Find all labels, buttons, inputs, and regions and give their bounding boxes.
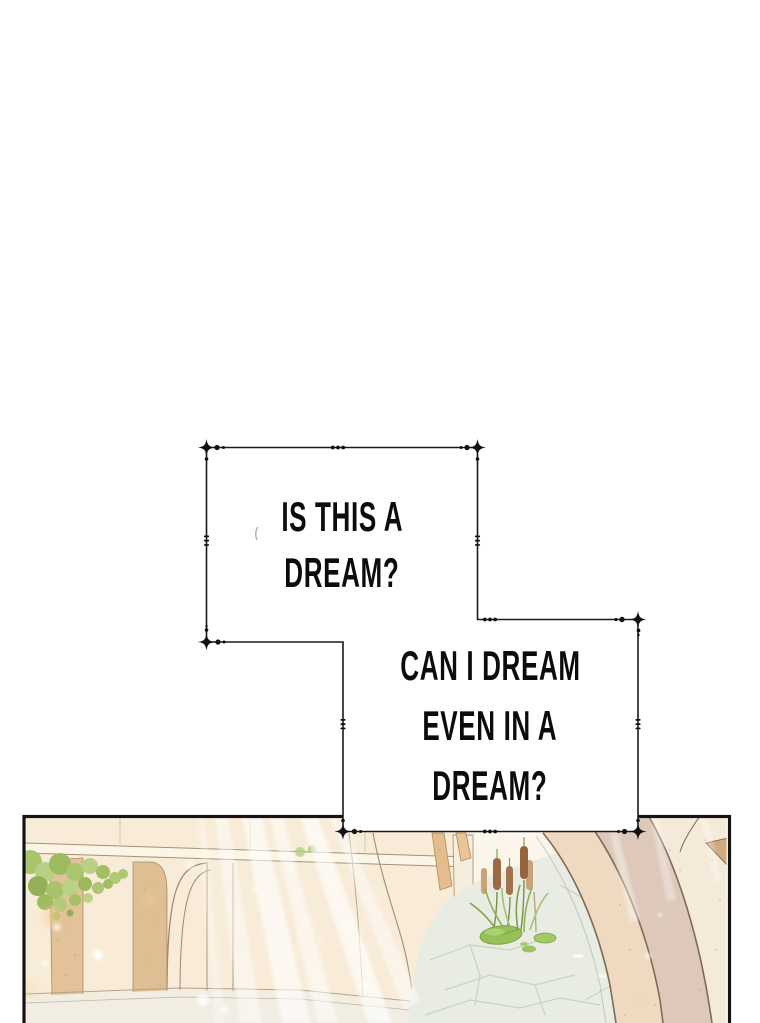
illustration-panel — [18, 815, 730, 1023]
thought-line: CAN I DREAM — [342, 645, 638, 687]
thought-box-1-text: IS THIS A DREAM? — [206, 447, 478, 642]
thought-box-2-text: CAN I DREAM EVEN IN A DREAM? — [342, 620, 638, 832]
comic-page: IS THIS A DREAM? CAN I DREAM EVEN IN A D… — [0, 0, 760, 1023]
thought-line: IS THIS A — [206, 496, 478, 538]
thought-line: EVEN IN A — [342, 705, 638, 747]
thought-line: DREAM? — [206, 552, 478, 594]
thought-line: DREAM? — [342, 765, 638, 807]
